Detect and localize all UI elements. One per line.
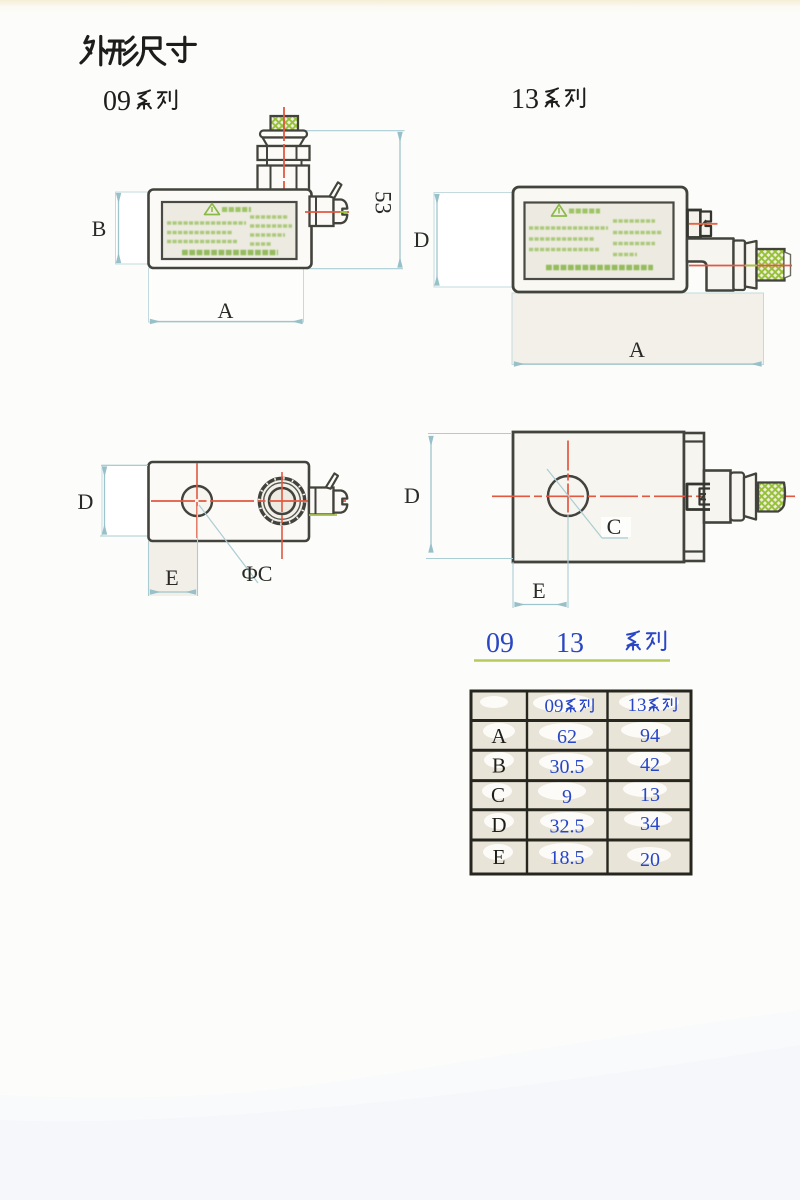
svg-text:E: E (532, 578, 545, 603)
svg-text:B: B (92, 216, 107, 241)
svg-text:32.5: 32.5 (550, 816, 585, 838)
svg-text:B: B (492, 754, 506, 778)
svg-text:34: 34 (640, 813, 660, 835)
svg-text:13: 13 (640, 784, 660, 806)
svg-text:D: D (491, 813, 506, 837)
svg-text:13: 13 (628, 695, 647, 716)
svg-text:9: 9 (562, 786, 572, 808)
svg-text:E: E (165, 565, 178, 590)
svg-text:53: 53 (371, 191, 396, 214)
svg-text:18.5: 18.5 (550, 847, 585, 869)
svg-text:A: A (218, 298, 234, 323)
svg-text:D: D (414, 227, 430, 252)
svg-text:13: 13 (511, 84, 539, 115)
svg-text:D: D (78, 489, 94, 514)
svg-text:30.5: 30.5 (550, 756, 585, 778)
svg-text:C: C (607, 514, 622, 539)
svg-text:E: E (493, 845, 506, 869)
svg-text:A: A (629, 337, 645, 362)
svg-text:20: 20 (640, 849, 660, 871)
svg-text:D: D (404, 483, 420, 508)
svg-text:62: 62 (557, 726, 577, 748)
svg-text:A: A (491, 724, 507, 748)
svg-text:C: C (491, 783, 505, 807)
svg-text:ΦC: ΦC (242, 561, 273, 586)
svg-text:94: 94 (640, 725, 660, 747)
svg-text:13: 13 (556, 628, 584, 659)
svg-text:09: 09 (103, 86, 131, 117)
svg-text:09: 09 (545, 696, 564, 717)
svg-text:09: 09 (486, 628, 514, 659)
svg-text:42: 42 (640, 754, 660, 776)
